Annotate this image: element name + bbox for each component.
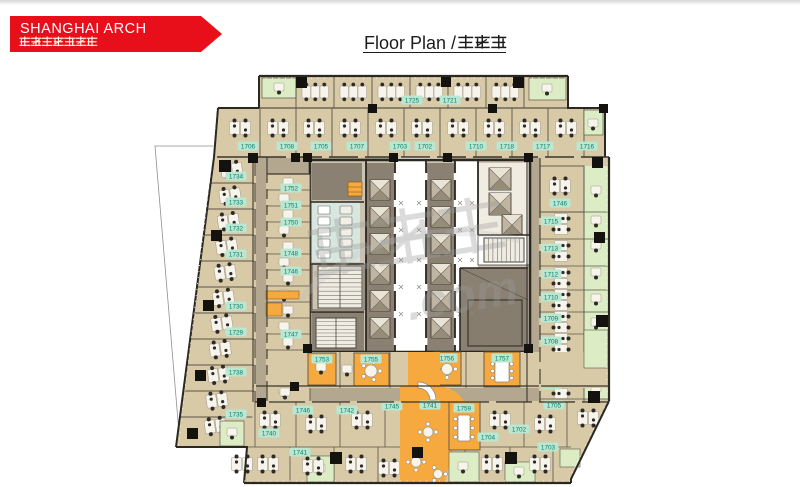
svg-text:1703: 1703 (393, 143, 408, 150)
svg-text:1713: 1713 (544, 245, 559, 252)
svg-text:1738: 1738 (229, 369, 244, 376)
svg-text:1747: 1747 (284, 331, 299, 338)
svg-text:1745: 1745 (385, 403, 400, 410)
svg-text:1730: 1730 (229, 303, 244, 310)
svg-text:1729: 1729 (229, 329, 244, 336)
svg-text:1752: 1752 (284, 185, 299, 192)
svg-text:1741: 1741 (293, 449, 308, 456)
svg-text:1710: 1710 (469, 143, 484, 150)
svg-text:1703: 1703 (541, 444, 556, 451)
svg-text:1734: 1734 (229, 173, 244, 180)
svg-text:1705: 1705 (547, 402, 562, 409)
svg-text:1725: 1725 (405, 97, 420, 104)
svg-text:1706: 1706 (241, 143, 256, 150)
svg-text:1757: 1757 (495, 355, 510, 362)
svg-text:1710: 1710 (544, 294, 559, 301)
svg-text:1742: 1742 (340, 407, 355, 414)
svg-text:1709: 1709 (544, 315, 559, 322)
svg-text:1748: 1748 (284, 250, 299, 257)
svg-text:1718: 1718 (500, 143, 515, 150)
svg-text:1756: 1756 (440, 355, 455, 362)
svg-text:1732: 1732 (229, 225, 244, 232)
svg-text:1702: 1702 (418, 143, 433, 150)
svg-text:1746: 1746 (284, 268, 299, 275)
svg-text:1704: 1704 (481, 434, 496, 441)
svg-text:1708: 1708 (280, 143, 295, 150)
svg-text:1721: 1721 (443, 97, 458, 104)
svg-text:1750: 1750 (284, 219, 299, 226)
svg-text:Floor Plan /: Floor Plan / (364, 33, 456, 53)
svg-text:1702: 1702 (512, 426, 527, 433)
svg-text:1751: 1751 (284, 202, 299, 209)
svg-text:1731: 1731 (229, 251, 244, 258)
svg-text:1746: 1746 (296, 407, 311, 414)
svg-text:1735: 1735 (229, 411, 244, 418)
svg-text:1712: 1712 (544, 271, 559, 278)
svg-text:1755: 1755 (364, 356, 379, 363)
svg-text:SHANGHAI ARCH: SHANGHAI ARCH (20, 21, 147, 37)
svg-text:1707: 1707 (350, 143, 365, 150)
svg-text:1759: 1759 (457, 405, 472, 412)
svg-text:1746: 1746 (553, 200, 568, 207)
svg-text:1741: 1741 (423, 402, 438, 409)
svg-text:1740: 1740 (262, 430, 277, 437)
svg-text:1716: 1716 (580, 143, 595, 150)
svg-text:1715: 1715 (544, 218, 559, 225)
svg-text:1717: 1717 (536, 143, 551, 150)
svg-text:1705: 1705 (314, 143, 329, 150)
svg-text:1733: 1733 (229, 199, 244, 206)
svg-text:1753: 1753 (315, 356, 330, 363)
svg-text:1708: 1708 (544, 338, 559, 345)
